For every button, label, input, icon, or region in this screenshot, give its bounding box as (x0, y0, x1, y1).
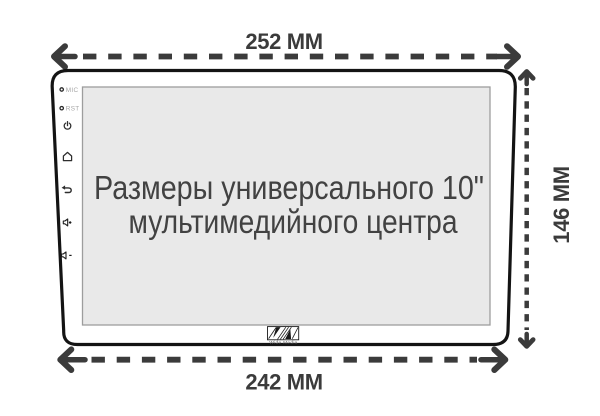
svg-text:Размеры универсального 10": Размеры универсального 10" (94, 169, 484, 206)
svg-text:Wide Media: Wide Media (269, 340, 297, 346)
svg-text:мультимедийного центра: мультимедийного центра (129, 203, 459, 240)
svg-text:242 ММ: 242 ММ (245, 370, 322, 395)
svg-text:RST: RST (66, 106, 80, 113)
svg-text:146 ММ: 146 ММ (549, 166, 574, 243)
svg-text:252 ММ: 252 ММ (245, 29, 322, 54)
svg-text:MIC: MIC (66, 87, 79, 94)
